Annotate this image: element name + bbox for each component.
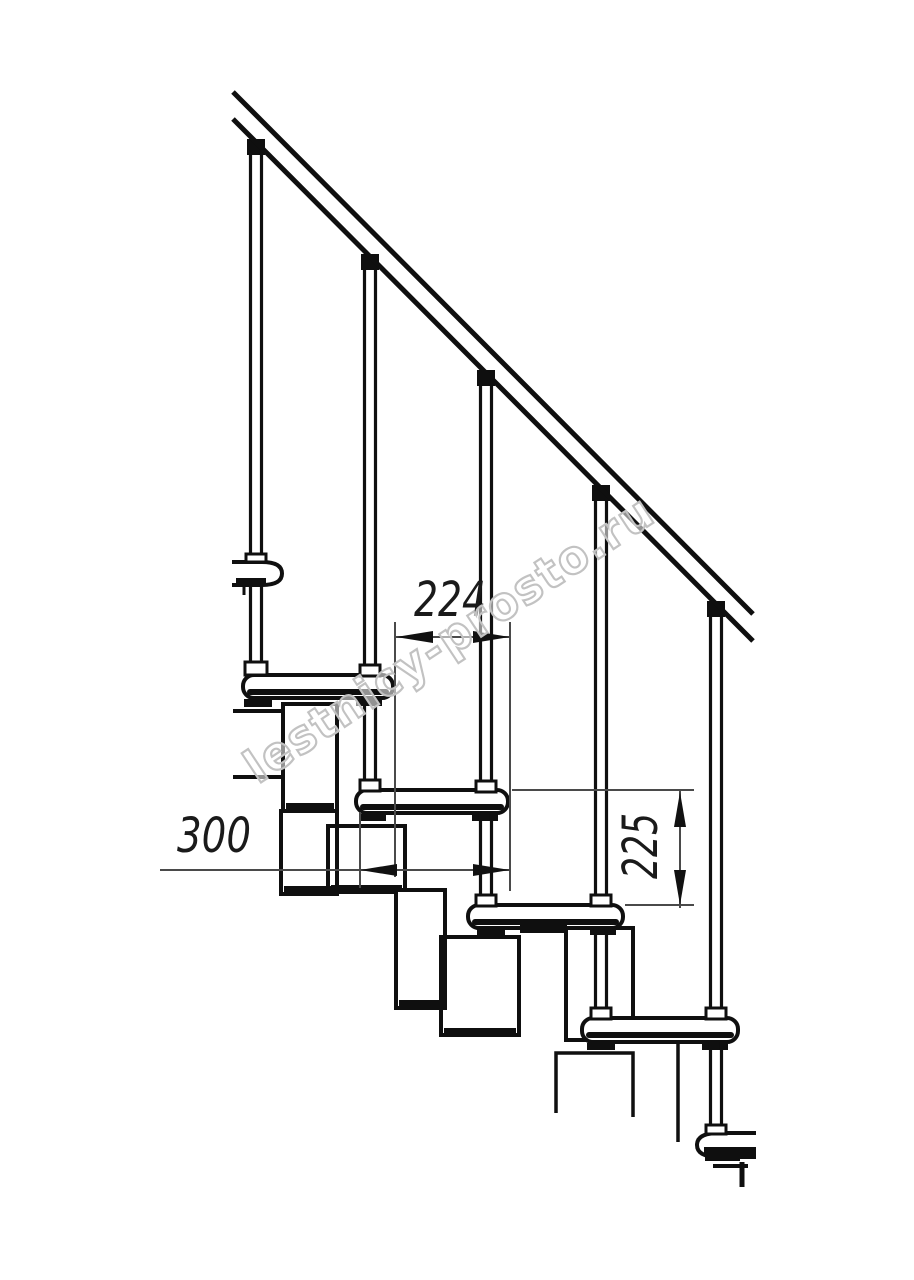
arrow-left-icon: [360, 864, 397, 876]
arrow-up-icon: [674, 792, 686, 827]
module-box: [441, 937, 519, 1035]
dimension-value-tread-depth: 300: [177, 808, 251, 864]
module-box: [328, 826, 405, 892]
arrow-down-icon: [674, 870, 686, 905]
dimension-step-height: 225: [512, 789, 694, 908]
module-chain: [281, 704, 748, 1187]
module-box: [396, 890, 445, 1008]
drawing-canvas: 224 300 225 lestnicy-prosto.ru: [0, 0, 914, 1280]
dimension-value-step-height: 225: [613, 813, 669, 879]
baluster-1: [245, 139, 267, 675]
baluster-5: [706, 601, 726, 1134]
staircase-technical-drawing: 224 300 225 lestnicy-prosto.ru: [0, 0, 914, 1280]
watermark-text: lestnicy-prosto.ru: [234, 484, 664, 794]
module-outline-partial: [556, 1053, 633, 1117]
tread-4: [582, 1018, 738, 1042]
